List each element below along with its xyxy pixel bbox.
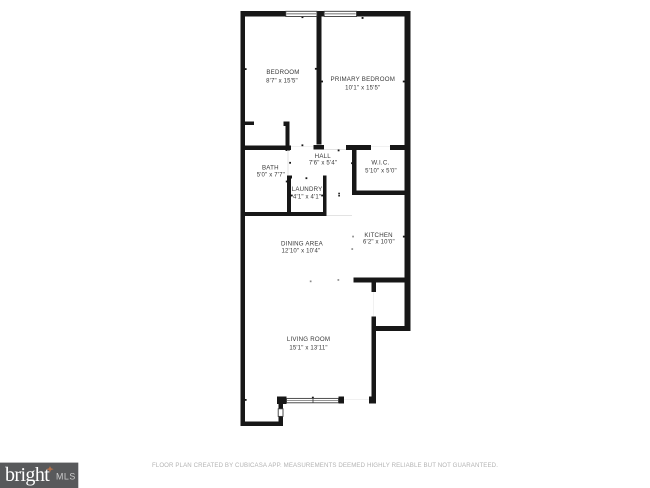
svg-text:4'1" x 4'1": 4'1" x 4'1" — [293, 194, 321, 200]
svg-text:MLS: MLS — [56, 471, 76, 481]
svg-text:15'1" x 13'11": 15'1" x 13'11" — [289, 345, 327, 351]
svg-text:KITCHEN: KITCHEN — [364, 232, 393, 239]
svg-text:LIVING ROOM: LIVING ROOM — [287, 336, 330, 343]
svg-text:5'10" x 5'0": 5'10" x 5'0" — [365, 169, 397, 175]
svg-text:7'6" x 5'4": 7'6" x 5'4" — [309, 161, 337, 167]
svg-text:W.I.C.: W.I.C. — [371, 160, 389, 167]
svg-text:8'7" x 15'5": 8'7" x 15'5" — [266, 78, 298, 84]
svg-text:BEDROOM: BEDROOM — [266, 69, 299, 76]
svg-text:bright: bright — [5, 464, 50, 486]
svg-text:5'0" x 7'7": 5'0" x 7'7" — [257, 173, 285, 179]
svg-text:HALL: HALL — [315, 153, 332, 160]
svg-text:DINING AREA: DINING AREA — [281, 241, 324, 248]
svg-text:BATH: BATH — [262, 164, 279, 171]
svg-text:10'1" x 15'5": 10'1" x 15'5" — [345, 86, 380, 92]
svg-text:FLOOR PLAN CREATED BY CUBICASA: FLOOR PLAN CREATED BY CUBICASA APP. MEAS… — [152, 462, 498, 469]
svg-text:6'2" x 10'0": 6'2" x 10'0" — [363, 240, 395, 246]
svg-text:12'10" x 10'4": 12'10" x 10'4" — [282, 249, 321, 255]
svg-text:LAUNDRY: LAUNDRY — [292, 186, 323, 193]
svg-text:PRIMARY BEDROOM: PRIMARY BEDROOM — [331, 76, 396, 83]
